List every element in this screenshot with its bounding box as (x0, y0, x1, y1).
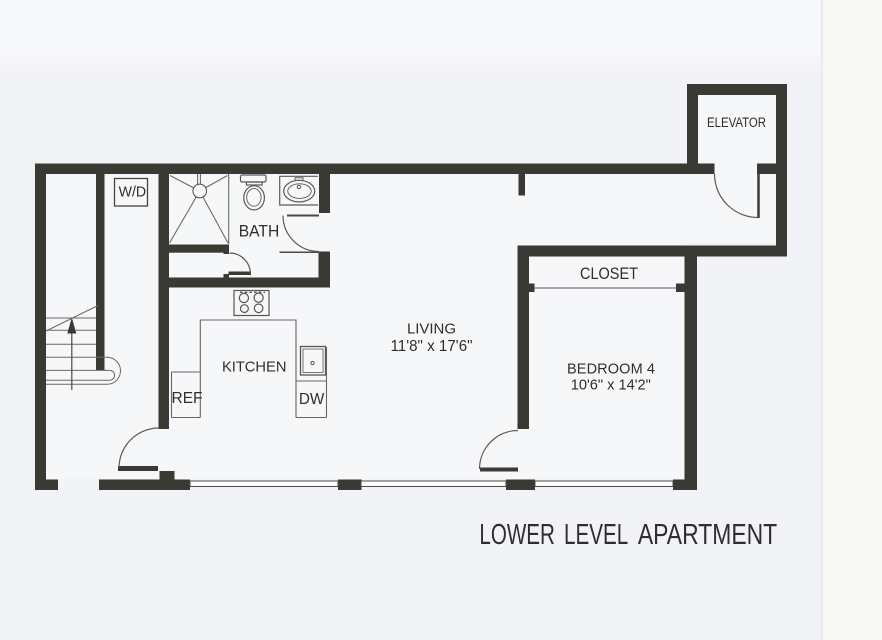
svg-text:BATH: BATH (239, 221, 280, 240)
svg-text:CLOSET: CLOSET (580, 264, 638, 283)
svg-text:BEDROOM 4: BEDROOM 4 (567, 361, 655, 377)
svg-text:DW: DW (299, 391, 325, 408)
svg-text:KITCHEN: KITCHEN (222, 359, 287, 376)
svg-text:10'6" x 14'2": 10'6" x 14'2" (571, 377, 651, 394)
svg-text:REF: REF (172, 390, 203, 407)
svg-text:W/D: W/D (119, 185, 147, 201)
svg-text:LIVING: LIVING (407, 321, 456, 338)
svg-text:11'8" x 17'6": 11'8" x 17'6" (391, 338, 473, 355)
svg-text:ELEVATOR: ELEVATOR (707, 115, 766, 130)
